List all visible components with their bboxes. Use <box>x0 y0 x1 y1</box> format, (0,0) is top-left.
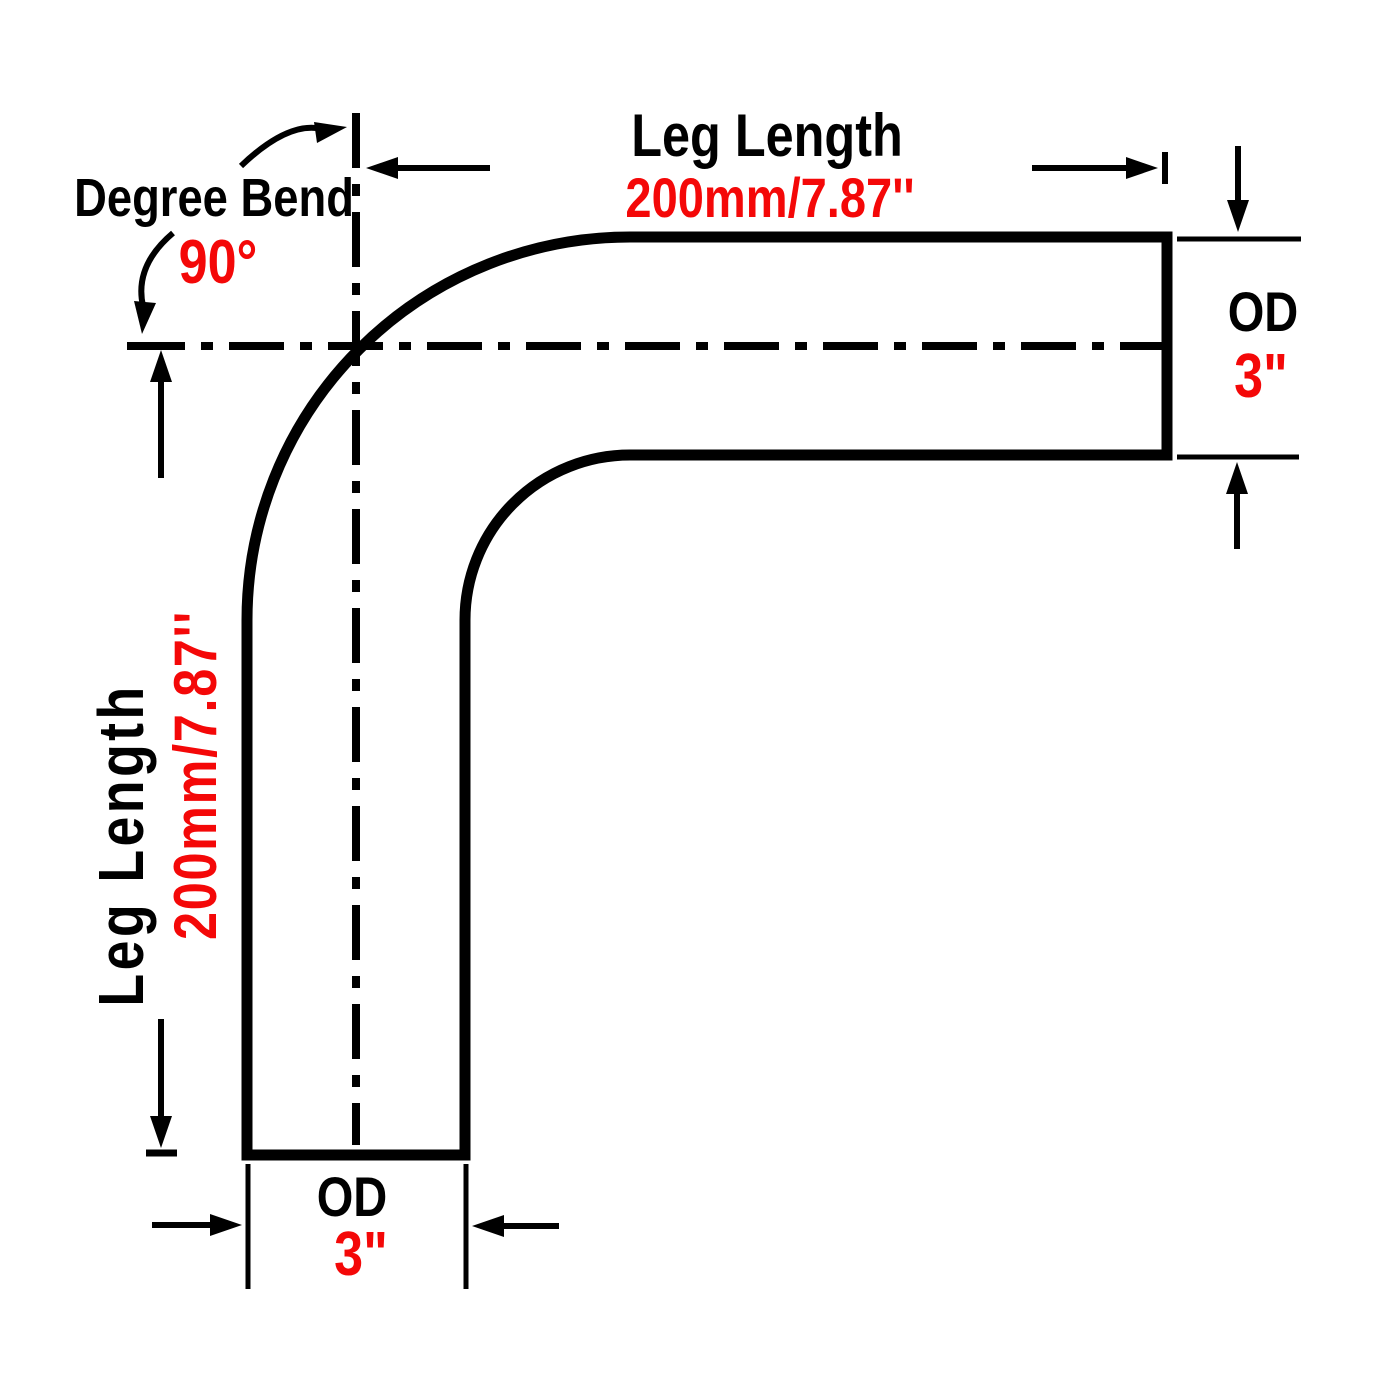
left-dim-down-arrowhead <box>150 1116 172 1148</box>
top-dim-right-arrowhead <box>1126 157 1158 179</box>
right-od-value: 3" <box>1234 346 1288 408</box>
top-leg-length-value: 200mm/7.87'' <box>625 170 914 226</box>
bottom-od-left-arrowhead <box>472 1215 504 1237</box>
degree-bend-arc-arrow-lower <box>141 233 173 306</box>
left-leg-length-label: Leg Length <box>89 683 153 1006</box>
degree-bend-value: 90° <box>179 232 258 294</box>
bottom-od-right-arrowhead <box>210 1214 242 1236</box>
right-od-label: OD <box>1228 284 1299 340</box>
left-dim-up-arrowhead <box>150 350 172 382</box>
left-leg-length-value: 200mm/7.87'' <box>166 610 226 940</box>
elbow-pipe-dimension-diagram: Degree Bend 90° Leg Length 200mm/7.87'' … <box>0 0 1400 1400</box>
degree-bend-label: Degree Bend <box>74 171 354 225</box>
degree-bend-arc-arrowhead-upper <box>314 122 347 143</box>
bottom-od-label: OD <box>317 1169 388 1225</box>
pipe-outline <box>247 237 1167 1155</box>
right-od-up-arrowhead <box>1226 462 1248 494</box>
top-dim-left-arrowhead <box>366 157 398 179</box>
top-leg-length-label: Leg Length <box>631 106 903 166</box>
bottom-od-value: 3" <box>334 1224 388 1286</box>
degree-bend-arc-arrowhead-lower <box>134 301 156 334</box>
right-od-down-arrowhead <box>1227 200 1249 232</box>
degree-bend-arc-arrow-upper <box>241 128 322 166</box>
